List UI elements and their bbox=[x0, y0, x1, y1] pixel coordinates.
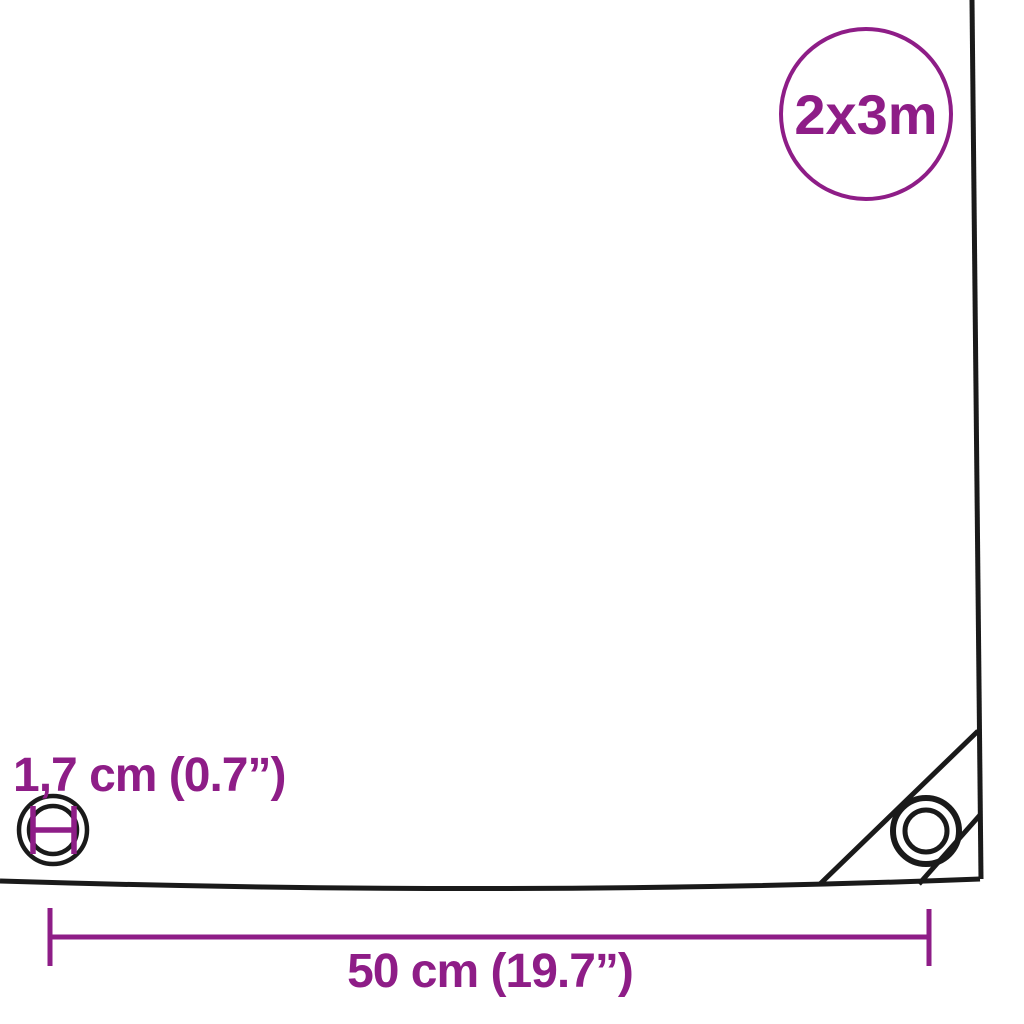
corner-grommet-icon bbox=[893, 798, 959, 864]
product-dimension-diagram: 2x3m 1,7 cm (0.7”) 50 cm (19.7”) bbox=[0, 0, 1024, 1024]
tarp-bottom-edge bbox=[0, 879, 980, 889]
tarp-right-edge bbox=[972, 0, 981, 879]
eyelet-diameter-label: 1,7 cm (0.7”) bbox=[13, 748, 285, 803]
size-badge: 2x3m bbox=[779, 27, 953, 201]
grommet-inner-ring bbox=[905, 810, 947, 852]
size-badge-label: 2x3m bbox=[794, 82, 937, 147]
eyelet-diameter-icon bbox=[19, 796, 87, 864]
bottom-width-label: 50 cm (19.7”) bbox=[250, 944, 730, 999]
